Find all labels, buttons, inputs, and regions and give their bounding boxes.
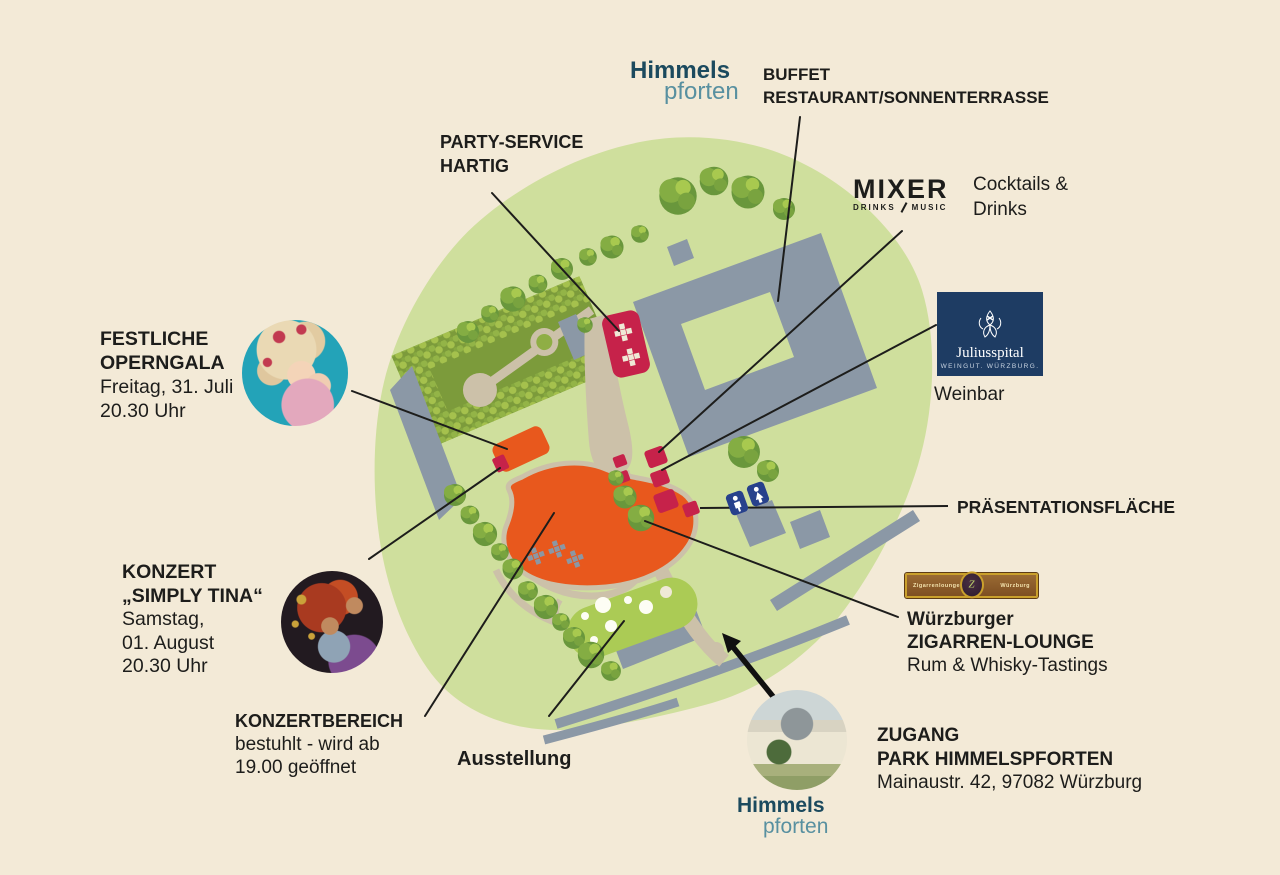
zigarrenlounge-monogram: Z [968, 579, 974, 590]
konzertbereich-line2: 19.00 geöffnet [235, 756, 403, 779]
zigarrenlounge-logo-left: Zigarrenlounge [913, 583, 960, 589]
konzertbereich-title: KONZERTBEREICH [235, 710, 403, 733]
mixer-logo-name: MIXER [853, 176, 949, 202]
himmelspforten-logo-top: Himmels pforten [630, 60, 739, 103]
zigarren-line3: Rum & Whisky-Tastings [907, 654, 1108, 677]
zigarrenlounge-logo: Zigarrenlounge Würzburg Z [905, 573, 1038, 598]
operngala-label: FESTLICHE OPERNGALA Freitag, 31. Juli 20… [100, 327, 233, 423]
juliusspital-logo: Juliusspital WEINGUT. WÜRZBURG. [937, 292, 1043, 376]
zugang-photo [747, 690, 847, 790]
zugang-line3: Mainaustr. 42, 97082 Würzburg [877, 771, 1142, 795]
operngala-time: 20.30 Uhr [100, 399, 233, 423]
zugang-line1: ZUGANG [877, 724, 1142, 748]
operngala-date: Freitag, 31. Juli [100, 375, 233, 399]
zugang-line2: PARK HIMMELSPFORTEN [877, 748, 1142, 772]
logo-word-pforten: pforten [664, 81, 739, 103]
ausstellung-label: Ausstellung [457, 747, 571, 771]
juliusspital-crest-icon [975, 308, 1005, 342]
praesentationsflaeche-label: PRÄSENTATIONSFLÄCHE [957, 495, 1175, 519]
party-service-label: PARTY-SERVICE HARTIG [440, 130, 583, 178]
mixer-desc-line1: Cocktails & [973, 172, 1068, 197]
ausstellung-text: Ausstellung [457, 748, 571, 770]
weinbar-text: Weinbar [934, 384, 1004, 405]
buffet-line1: BUFFET [763, 63, 1049, 86]
zugang-label: ZUGANG PARK HIMMELSPFORTEN Mainaustr. 42… [877, 724, 1142, 795]
tina-title1: KONZERT [122, 561, 263, 585]
operngala-title1: FESTLICHE [100, 327, 233, 351]
simply-tina-label: KONZERT „SIMPLY TINA“ Samstag, 01. Augus… [122, 561, 263, 679]
mixer-logo-drinks: DRINKS [853, 203, 896, 212]
tina-title2: „SIMPLY TINA“ [122, 585, 263, 609]
mixer-desc-line2: Drinks [973, 197, 1068, 222]
juliusspital-sub: WEINGUT. WÜRZBURG. [941, 363, 1040, 370]
tina-time: 20.30 Uhr [122, 655, 263, 679]
buffet-line2: RESTAURANT/SONNENTERRASSE [763, 86, 1049, 109]
zigarrenlounge-logo-right: Würzburg [1000, 583, 1030, 589]
zigarren-line1: Würzburger [907, 608, 1108, 631]
logo-word-himmels: Himmels [737, 795, 828, 817]
zigarren-line2: ZIGARREN-LOUNGE [907, 631, 1108, 654]
event-map-poster: Himmels pforten BUFFET RESTAURANT/SONNEN… [0, 0, 1280, 875]
zigarren-lounge-label: Würzburger ZIGARREN-LOUNGE Rum & Whisky-… [907, 608, 1108, 677]
weinbar-label: Weinbar [934, 383, 1004, 407]
tina-day: Samstag, [122, 608, 263, 632]
juliusspital-name: Juliusspital [956, 345, 1024, 361]
tina-date: 01. August [122, 632, 263, 656]
praesentationsflaeche-text: PRÄSENTATIONSFLÄCHE [957, 497, 1175, 517]
buffet-label: BUFFET RESTAURANT/SONNENTERRASSE [763, 63, 1049, 109]
party-service-line1: PARTY-SERVICE [440, 130, 583, 154]
zigarrenlounge-emblem-icon: Z [960, 571, 984, 598]
himmelspforten-logo-bottom: Himmels pforten [737, 795, 828, 838]
simply-tina-photo [281, 571, 383, 673]
mixer-logo: MIXER DRINKS MUSIC [853, 176, 949, 213]
operngala-photo [242, 320, 348, 426]
mixer-logo-music: MUSIC [912, 203, 948, 212]
mixer-desc-label: Cocktails & Drinks [973, 172, 1068, 222]
konzertbereich-label: KONZERTBEREICH bestuhlt - wird ab 19.00 … [235, 710, 403, 779]
logo-word-pforten: pforten [763, 816, 828, 838]
konzertbereich-line1: bestuhlt - wird ab [235, 733, 403, 756]
party-service-line2: HARTIG [440, 154, 583, 178]
operngala-title2: OPERNGALA [100, 351, 233, 375]
